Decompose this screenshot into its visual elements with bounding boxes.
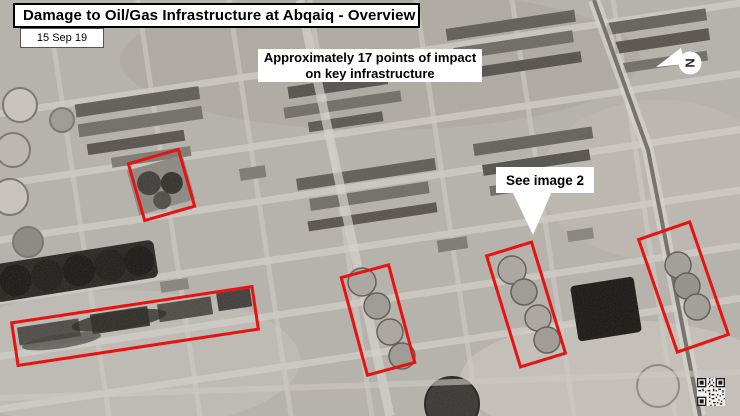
- impact-area-center: [339, 263, 416, 377]
- impact-area-southwest-long: [10, 285, 260, 367]
- impact-area-far-east: [636, 220, 730, 354]
- date-badge: 15 Sep 19: [20, 28, 104, 48]
- impact-note: Approximately 17 points of impact on key…: [258, 49, 482, 82]
- impact-area-northwest: [126, 148, 196, 223]
- impact-area-east: [485, 240, 568, 368]
- see-image-2-label: See image 2: [496, 167, 594, 193]
- impact-note-line1: Approximately 17 points of impact: [264, 50, 476, 66]
- image-title: Damage to Oil/Gas Infrastructure at Abqa…: [13, 3, 420, 28]
- impact-note-line2: on key infrastructure: [305, 66, 434, 82]
- annotated-satellite-overview: N Damage to Oil/Gas: [0, 0, 740, 416]
